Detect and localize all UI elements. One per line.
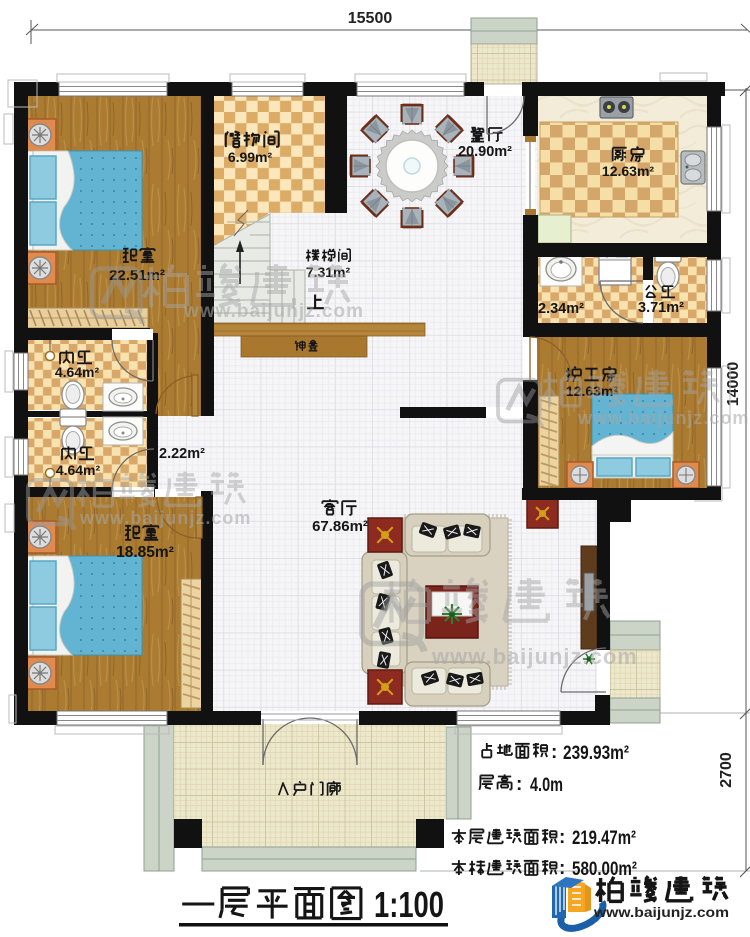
- svg-text:www.baijunjz.com: www.baijunjz.com: [593, 905, 729, 920]
- svg-text:www.baijunjz.com: www.baijunjz.com: [577, 408, 749, 428]
- svg-text::: :: [559, 858, 565, 879]
- svg-text:2.22m²: 2.22m²: [159, 446, 205, 462]
- svg-text::: :: [551, 742, 557, 763]
- svg-text:3.71m²: 3.71m²: [638, 300, 684, 316]
- svg-text:www.baijunjz.com: www.baijunjz.com: [431, 644, 638, 669]
- svg-text:2.34m²: 2.34m²: [538, 301, 584, 317]
- svg-text:www.baijunjz.com: www.baijunjz.com: [79, 508, 251, 528]
- svg-text:219.47m²: 219.47m²: [572, 828, 636, 849]
- svg-text:2700: 2700: [718, 752, 735, 788]
- svg-text:20.90m²: 20.90m²: [458, 144, 512, 160]
- svg-text:580.00m²: 580.00m²: [572, 859, 637, 880]
- svg-text:18.85m²: 18.85m²: [116, 544, 174, 561]
- svg-text:www.baijunjz.com: www.baijunjz.com: [183, 301, 364, 322]
- svg-text:14000: 14000: [725, 362, 742, 407]
- svg-text:4.0m: 4.0m: [530, 775, 563, 796]
- svg-text:1:100: 1:100: [374, 884, 444, 925]
- svg-text:6.99m²: 6.99m²: [228, 149, 273, 165]
- svg-text:239.93m²: 239.93m²: [563, 743, 629, 764]
- svg-text:12.63m²: 12.63m²: [602, 163, 654, 179]
- svg-text:4.64m²: 4.64m²: [56, 462, 101, 478]
- svg-text::: :: [516, 774, 522, 795]
- svg-text:4.64m²: 4.64m²: [55, 364, 100, 380]
- svg-text:15500: 15500: [348, 10, 393, 27]
- svg-text:67.86m²: 67.86m²: [312, 518, 368, 535]
- svg-text::: :: [559, 827, 565, 848]
